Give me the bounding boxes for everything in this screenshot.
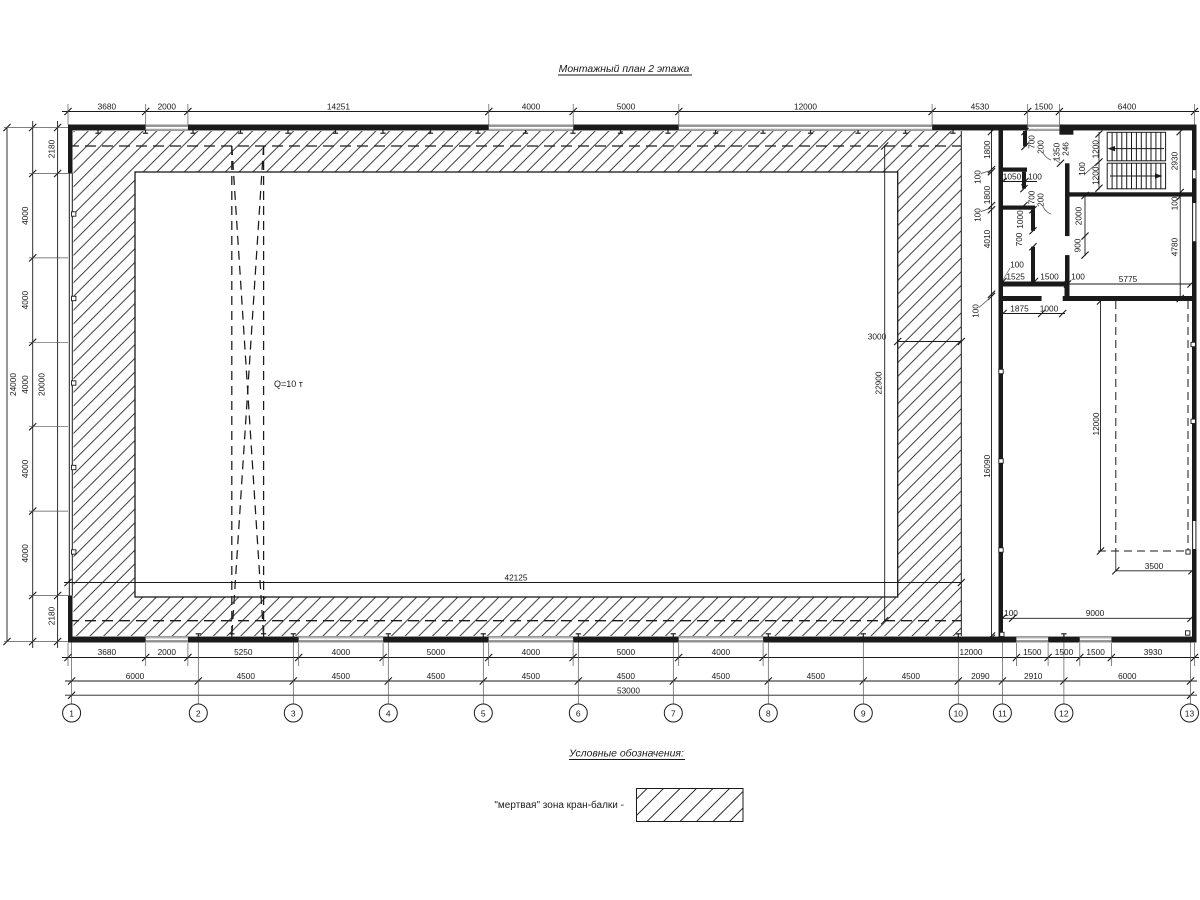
svg-text:3680: 3680 [98, 101, 117, 111]
svg-text:1500: 1500 [1040, 271, 1059, 281]
svg-text:24000: 24000 [8, 373, 18, 396]
svg-text:1525: 1525 [1006, 271, 1025, 281]
svg-text:7: 7 [671, 709, 676, 719]
svg-text:2910: 2910 [1024, 671, 1043, 681]
svg-text:4000: 4000 [712, 647, 731, 657]
svg-text:12: 12 [1059, 709, 1069, 719]
svg-text:1050: 1050 [1003, 172, 1022, 182]
svg-text:1000: 1000 [1040, 304, 1059, 314]
svg-text:1800: 1800 [982, 185, 992, 204]
svg-text:4530: 4530 [971, 101, 990, 111]
svg-text:200: 200 [1036, 140, 1046, 154]
svg-text:5: 5 [481, 709, 486, 719]
svg-text:3500: 3500 [1145, 561, 1164, 571]
svg-text:4: 4 [386, 709, 391, 719]
svg-text:4010: 4010 [982, 229, 992, 248]
svg-text:9: 9 [861, 709, 866, 719]
svg-text:4500: 4500 [712, 671, 731, 681]
svg-text:100: 100 [1071, 271, 1085, 281]
svg-text:100: 100 [973, 208, 983, 222]
svg-text:2000: 2000 [158, 101, 177, 111]
svg-text:2930: 2930 [1170, 151, 1180, 170]
svg-text:6: 6 [576, 709, 581, 719]
svg-text:1000: 1000 [1015, 210, 1025, 229]
svg-text:2000: 2000 [158, 647, 177, 657]
svg-text:4500: 4500 [522, 671, 541, 681]
svg-text:3680: 3680 [98, 647, 117, 657]
svg-text:42125: 42125 [504, 573, 527, 583]
svg-text:1500: 1500 [1023, 647, 1042, 657]
svg-text:100: 100 [1004, 608, 1018, 618]
svg-text:4500: 4500 [237, 671, 256, 681]
svg-text:5000: 5000 [427, 647, 446, 657]
svg-text:2180: 2180 [47, 139, 57, 158]
svg-text:1500: 1500 [1086, 647, 1105, 657]
svg-text:5775: 5775 [1119, 274, 1138, 284]
svg-text:12000: 12000 [959, 647, 982, 657]
svg-text:4000: 4000 [20, 375, 30, 394]
svg-text:14251: 14251 [327, 101, 350, 111]
svg-text:700: 700 [1014, 232, 1024, 246]
svg-text:13: 13 [1185, 709, 1195, 719]
svg-text:2: 2 [196, 709, 201, 719]
svg-text:53000: 53000 [617, 686, 640, 696]
svg-text:4000: 4000 [522, 647, 541, 657]
svg-text:12000: 12000 [1091, 412, 1101, 435]
svg-text:3000: 3000 [868, 332, 887, 342]
svg-text:100: 100 [973, 170, 983, 184]
svg-text:20000: 20000 [37, 373, 47, 396]
svg-text:4000: 4000 [20, 459, 30, 478]
svg-text:6400: 6400 [1118, 101, 1137, 111]
svg-text:4000: 4000 [522, 101, 541, 111]
svg-text:1500: 1500 [1034, 101, 1053, 111]
svg-text:5250: 5250 [234, 647, 253, 657]
svg-text:4000: 4000 [20, 290, 30, 309]
svg-text:4000: 4000 [332, 647, 351, 657]
svg-text:1800: 1800 [982, 140, 992, 159]
svg-text:246: 246 [1060, 142, 1070, 156]
svg-text:3930: 3930 [1144, 647, 1163, 657]
svg-text:4500: 4500 [617, 671, 636, 681]
svg-text:2180: 2180 [47, 606, 57, 625]
svg-text:1200: 1200 [1091, 166, 1101, 185]
svg-text:Условные обозначения:: Условные обозначения: [568, 748, 684, 760]
svg-text:9000: 9000 [1086, 608, 1105, 618]
svg-text:5000: 5000 [617, 101, 636, 111]
svg-text:100: 100 [971, 304, 981, 318]
svg-text:8: 8 [766, 709, 771, 719]
svg-text:Монтажный план 2 этажа: Монтажный план 2 этажа [559, 64, 690, 75]
svg-text:200: 200 [1036, 193, 1046, 207]
svg-text:4000: 4000 [20, 206, 30, 225]
svg-text:10: 10 [954, 709, 964, 719]
svg-text:Q=10 т: Q=10 т [274, 379, 303, 389]
svg-text:900: 900 [1073, 238, 1083, 252]
svg-text:4500: 4500 [332, 671, 351, 681]
svg-text:"мертвая" зона кран-балки -: "мертвая" зона кран-балки - [494, 799, 624, 811]
svg-text:1: 1 [69, 709, 74, 719]
svg-text:4500: 4500 [427, 671, 446, 681]
svg-text:5000: 5000 [617, 647, 636, 657]
svg-text:4500: 4500 [902, 671, 921, 681]
svg-text:6000: 6000 [1118, 671, 1137, 681]
svg-text:16090: 16090 [982, 454, 992, 477]
svg-text:11: 11 [998, 709, 1007, 719]
svg-text:6000: 6000 [126, 671, 145, 681]
svg-text:4500: 4500 [807, 671, 826, 681]
svg-text:12000: 12000 [794, 101, 817, 111]
svg-text:1200: 1200 [1091, 140, 1101, 159]
svg-text:2000: 2000 [1074, 206, 1084, 225]
svg-text:22900: 22900 [874, 371, 884, 394]
svg-text:2090: 2090 [971, 671, 990, 681]
svg-text:3: 3 [291, 709, 296, 719]
svg-text:100: 100 [1010, 260, 1024, 270]
svg-text:4000: 4000 [20, 544, 30, 563]
svg-text:4780: 4780 [1170, 237, 1180, 256]
svg-text:100: 100 [1028, 172, 1042, 182]
svg-text:1875: 1875 [1010, 304, 1029, 314]
